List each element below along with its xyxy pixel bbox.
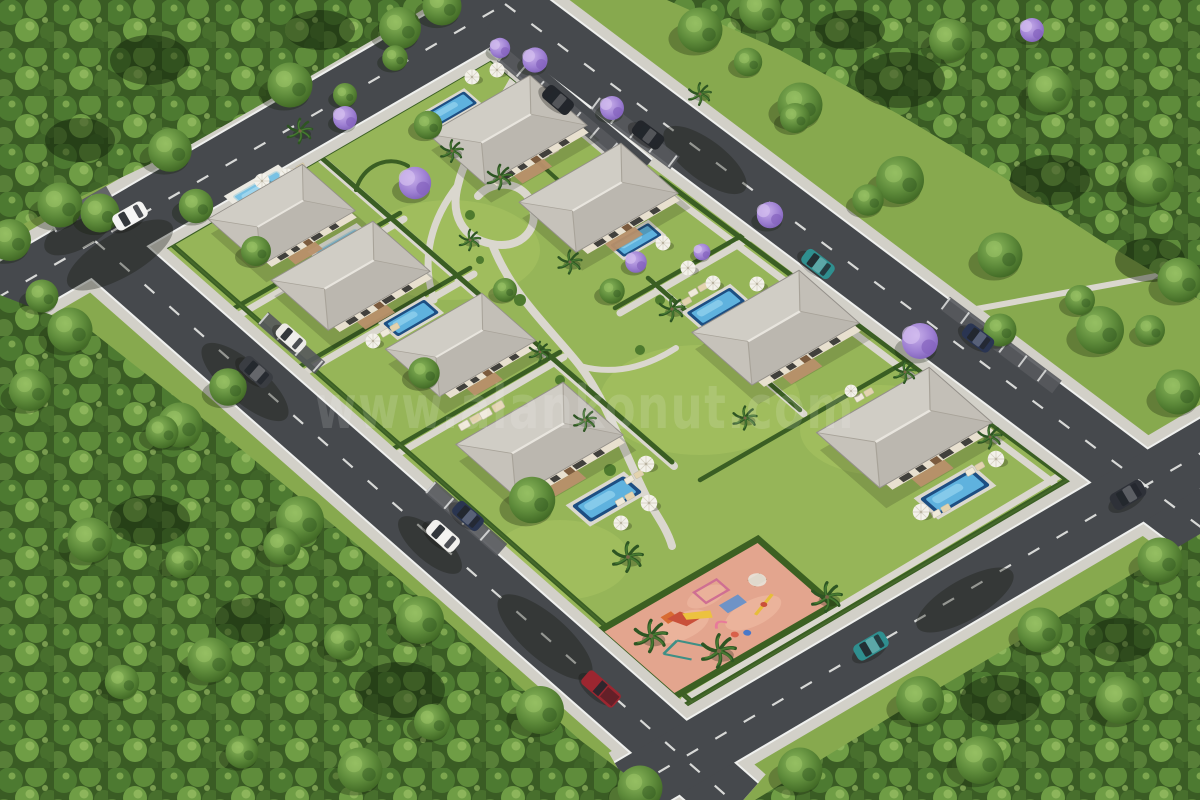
watermark: www.alankonut.com [315,373,855,443]
scene: www.alankonut.com [0,0,1200,800]
aerial-site-render: www.alankonut.com [0,0,1200,800]
